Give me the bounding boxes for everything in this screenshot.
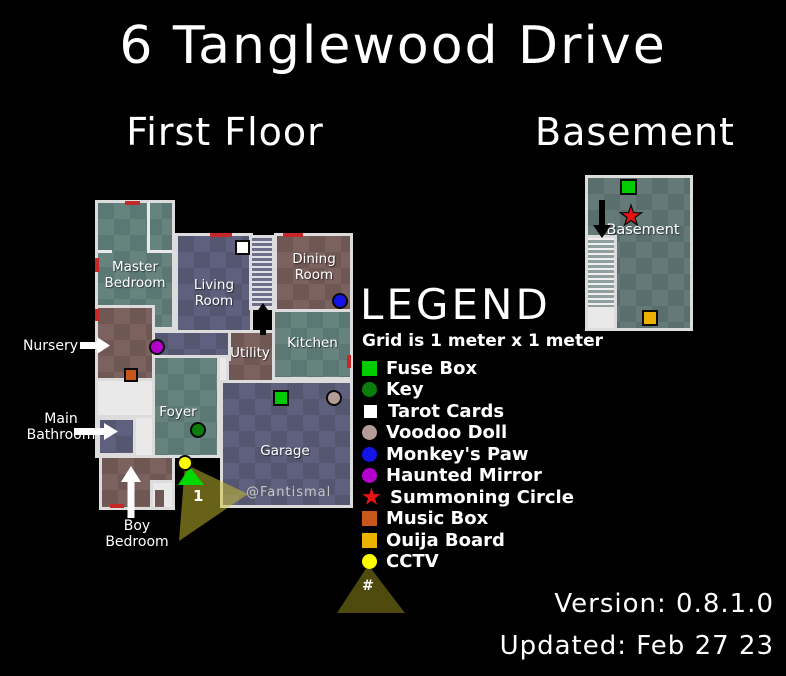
boy-bedroom-arrow-icon [121,466,141,518]
voodoo-doll-swatch [362,425,377,440]
legend-label: Haunted Mirror [386,465,542,486]
master-bedroom-label: Master Bedroom [100,259,170,291]
legend-label: Music Box [386,508,488,529]
legend-grid-note: Grid is 1 meter x 1 meter [362,331,603,351]
updated-text: Updated: Feb 27 23 [500,631,774,661]
cctv-swatch [362,554,377,569]
door-marker [210,233,232,237]
key-icon [190,422,206,438]
kitchen-label: Kitchen [277,335,348,351]
door-marker [283,233,303,237]
door-marker [95,309,99,321]
legend-label: Ouija Board [386,530,505,551]
legend-title: LEGEND [360,280,551,329]
haunted-mirror-swatch [362,468,377,483]
basement-stairs [588,238,614,307]
camera-1-number: 1 [193,487,203,505]
ouija-board-swatch [362,533,377,548]
legend-row-haunted-mirror: Haunted Mirror [362,466,542,486]
monkeys-paw-swatch [362,447,377,462]
legend-label: Fuse Box [386,358,477,379]
watermark: @Fantismal [246,485,331,500]
monkeys-paw-icon [332,293,348,309]
dining-room-label: Dining Room [283,251,345,283]
legend-label: Voodoo Doll [386,422,507,443]
door-marker [125,201,140,205]
legend-row-voodoo-doll: Voodoo Doll [362,423,507,443]
basement-heading: Basement [510,110,760,154]
legend-row-fuse-box: Fuse Box [362,358,477,378]
legend-row-cctv: CCTV [362,552,439,572]
boy-bedroom-callout: Boy Bedroom [92,518,182,550]
legend-label: Monkey's Paw [386,444,529,465]
legend-row-monkeys-paw: Monkey's Paw [362,444,529,464]
legend-row-ouija-board: Ouija Board [362,530,505,550]
fuse-box-icon-basement [620,179,637,195]
summoning-circle-swatch [362,488,381,507]
tarot-cards-icon [235,240,250,255]
fuse-box-swatch [362,361,377,376]
hallway-left [98,381,152,418]
first-floor-heading: First Floor [75,110,375,154]
tarot-cards-swatch [362,403,379,420]
wall-master-closet-horizontal [147,250,172,253]
fuse-box-icon [273,390,289,406]
nursery-callout: Nursery [10,338,78,354]
living-room-label: Living Room [183,277,245,309]
legend-row-summoning-circle: Summoning Circle [362,487,574,507]
legend-row-music-box: Music Box [362,509,488,529]
page-title: 6 Tanglewood Drive [0,16,786,76]
cctv-camera-icon [177,455,193,471]
main-bathroom-arrow-icon [74,423,118,440]
voodoo-doll-icon [326,390,342,406]
boy-bedroom-closet-inner [155,490,164,507]
first-floor-stairs [252,238,272,307]
map-poster: 6 Tanglewood Drive First Floor Basement … [0,0,786,676]
legend-label: CCTV [386,551,439,572]
wall-master-closet-vertical [147,203,150,253]
haunted-mirror-icon [149,339,165,355]
nursery-arrow-icon [80,337,110,354]
legend-row-key: Key [362,380,424,400]
legend-row-tarot-cards: Tarot Cards [362,401,504,421]
stairs-up-arrow-icon [254,303,272,335]
key-swatch [362,382,377,397]
camera-cone-symbol: # [362,578,374,594]
legend-label: Summoning Circle [390,487,574,508]
legend-label: Tarot Cards [388,401,504,422]
basement-room-label: Basement [604,222,682,238]
music-box-swatch [362,511,377,526]
wall-master-stub [98,250,112,253]
music-box-icon [124,368,138,382]
door-marker [347,355,351,368]
legend-label: Key [386,379,424,400]
foyer-label: Foyer [148,404,208,420]
door-marker [95,258,99,272]
stairs-down-arrow-icon [593,200,611,238]
utility-label: Utility [228,345,272,361]
garage-label: Garage [252,443,318,459]
version-text: Version: 0.8.1.0 [554,589,774,619]
ouija-board-icon [642,310,658,326]
